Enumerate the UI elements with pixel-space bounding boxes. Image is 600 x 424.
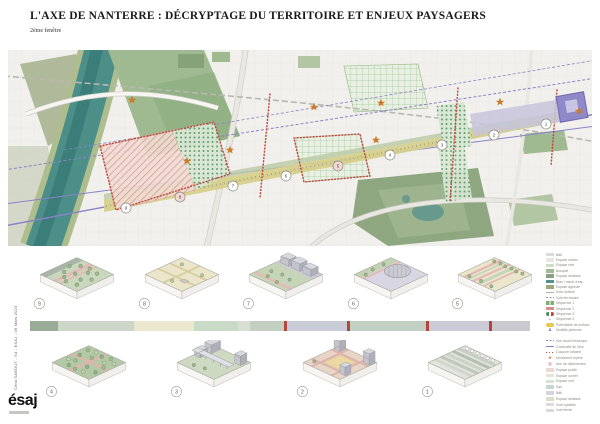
station-marker: 1 <box>541 119 551 129</box>
diagram-card-viaduct: 3 <box>165 340 261 402</box>
legend-symbol-swatch-icon <box>546 264 554 268</box>
grande-arche-marker <box>556 92 588 122</box>
legend-label: Coupure urbaine <box>556 350 581 354</box>
legend-symbol-swatch-icon <box>546 403 554 407</box>
territory-map: 987654321 <box>8 50 592 248</box>
legend-symbol-bar-icon <box>546 307 554 310</box>
sequence-segment <box>250 321 284 331</box>
sequence-segment <box>134 321 194 331</box>
legend-symbol-glyph-icon: ★ <box>546 356 554 360</box>
legend-row: ♟Mobilité piétonne <box>546 327 598 332</box>
legend-label: Espace vert <box>556 263 574 267</box>
legend-label: Aire de déploiement <box>556 362 586 366</box>
diagram-card-woodland: 9 <box>28 252 124 314</box>
legend-label: Espace ouvert <box>556 374 578 378</box>
svg-text:8: 8 <box>143 301 146 307</box>
legend-map: BâtiEspace urbainEspace vertBosquetEspac… <box>546 252 598 333</box>
legend-label: Bosquet <box>556 269 568 273</box>
station-marker: 4 <box>385 150 395 160</box>
legend-label: Bras / miroir d'eau <box>556 280 583 284</box>
sequence-segment <box>58 321 134 331</box>
legend-label: Espace vert <box>556 379 574 383</box>
legend-symbol-dotline-icon <box>546 352 554 354</box>
diagram-card-heath: 8 <box>133 252 229 314</box>
diagram-number-badge: 5 <box>452 298 462 308</box>
author-credit: Célia SABOUT - S4 - ESAJ - 09 Mars 2023 <box>13 306 18 390</box>
legend-label: Voie cyclable <box>556 403 576 407</box>
legend-symbol-swatch-icon <box>546 280 554 284</box>
legend-symbol-swatch-icon <box>546 368 554 372</box>
legend-symbol-swatch-icon <box>546 285 554 289</box>
legend-symbol-swatch-icon <box>546 258 554 262</box>
legend-symbol-dots2-icon <box>546 312 554 316</box>
legend-symbol-dashline-icon <box>546 297 554 298</box>
legend-symbol-swatch-icon <box>546 409 554 413</box>
sequence-segment <box>238 321 250 331</box>
diagram-number-badge: 3 <box>172 386 182 396</box>
diagram-card-garden: 4 <box>40 340 136 402</box>
page-title: L'AXE DE NANTERRE : DÉCRYPTAGE DU TERRIT… <box>30 10 486 22</box>
sequence-segment <box>194 321 238 331</box>
legend-symbol-swatch-icon <box>546 391 554 395</box>
legend-label: Voie ferroviaire <box>556 296 579 300</box>
svg-text:2: 2 <box>301 389 304 395</box>
legend-symbol-swatch-icon <box>546 374 554 378</box>
legend-label: Séquence 1 <box>556 301 574 305</box>
station-marker: 6 <box>281 171 291 181</box>
legend-label: Espace délaissé <box>556 397 581 401</box>
diagram-number-badge: 8 <box>139 298 149 308</box>
legend-symbol-glyph-icon: ◎ <box>546 362 554 366</box>
legend-symbol-swatch-icon <box>546 269 554 273</box>
legend-symbol-swatch-icon <box>546 253 554 257</box>
sequence-segment <box>30 321 58 331</box>
legend-label: Espace public <box>556 368 577 372</box>
map-svg: 987654321 <box>8 50 592 246</box>
legend-symbol-duo-icon <box>546 301 554 305</box>
esaj-logo: ésaj <box>8 392 37 410</box>
diagram-card-slope: 7 <box>237 252 333 314</box>
diagram-card-boulevard: 5 <box>446 252 542 314</box>
legend-symbol-glyph-icon: + <box>546 318 554 322</box>
diagram-number-badge: 1 <box>422 386 432 396</box>
legend-label: Espace délaissé <box>556 274 581 278</box>
legend-symbol-swatch-icon <box>546 385 554 389</box>
station-marker: 5 <box>333 161 343 171</box>
diagram-number-badge: 4 <box>46 386 56 396</box>
station-marker: 3 <box>437 140 447 150</box>
legend-label: Monument repère <box>556 356 583 360</box>
legend-label: Eau <box>556 385 562 389</box>
sequence-segment <box>287 321 347 331</box>
sequence-segment <box>492 321 530 331</box>
legend-label: Séquence 3 <box>556 312 574 316</box>
station-marker: 7 <box>228 181 238 191</box>
legend-label: Bâti <box>556 391 562 395</box>
legend-symbol-blob-icon <box>546 323 554 327</box>
legend-symbol-swatch-icon <box>546 380 554 384</box>
sequence-segment <box>350 321 426 331</box>
diagram-card-plaza: 2 <box>291 340 387 402</box>
svg-text:5: 5 <box>456 301 459 307</box>
diagram-row-bottom: 4321 <box>40 340 512 402</box>
legend-symbol-line-icon <box>546 291 554 295</box>
legend-label: Séquence 2 <box>556 307 574 311</box>
legend-label: Voie routière <box>556 290 575 294</box>
diagram-number-badge: 9 <box>34 298 44 308</box>
svg-text:4: 4 <box>50 389 53 395</box>
page-subtitle: 2ème fenêtre <box>30 28 61 34</box>
svg-text:9: 9 <box>38 301 41 307</box>
diagram-number-badge: 7 <box>243 298 253 308</box>
svg-text:3: 3 <box>175 389 178 395</box>
legend-label: Mobilité piétonne <box>556 328 582 332</box>
svg-text:1: 1 <box>426 389 429 395</box>
legend-label: Potentialité de surface <box>556 323 590 327</box>
diagram-number-badge: 6 <box>348 298 358 308</box>
legend-row: Voie ferrée <box>546 408 598 414</box>
legend-label: Espace agricole <box>556 285 580 289</box>
svg-text:7: 7 <box>247 301 250 307</box>
station-marker: 9 <box>121 203 131 213</box>
legend-label: Voie ferrée <box>556 408 572 412</box>
legend-axis: Axe visuel historiqueContinuité de l'axe… <box>546 338 598 413</box>
legend-label: Espace urbain <box>556 258 578 262</box>
legend-symbol-line-icon <box>546 345 554 349</box>
legend-label: Continuité de l'axe <box>556 345 584 349</box>
legend-symbol-swatch-icon <box>546 397 554 401</box>
legend-label: Axe visuel historique <box>556 339 587 343</box>
legend-symbol-glyph-icon: ♟ <box>546 328 554 332</box>
station-marker: 8 <box>175 192 185 202</box>
diagram-card-terraces: 1 <box>416 340 512 402</box>
diagram-row-top: 98765 <box>28 252 542 314</box>
legend-label: Séquence 4 <box>556 317 574 321</box>
legend-symbol-dashline-icon <box>546 340 554 341</box>
diagram-card-oval: 6 <box>342 252 438 314</box>
legend-symbol-swatch-icon <box>546 274 554 278</box>
station-marker: 2 <box>489 130 499 140</box>
sequence-segment <box>429 321 489 331</box>
svg-text:6: 6 <box>352 301 355 307</box>
sequence-strip <box>30 321 530 331</box>
logo-subtext <box>9 411 29 414</box>
legend-label: Bâti <box>556 253 562 257</box>
diagram-number-badge: 2 <box>297 386 307 396</box>
